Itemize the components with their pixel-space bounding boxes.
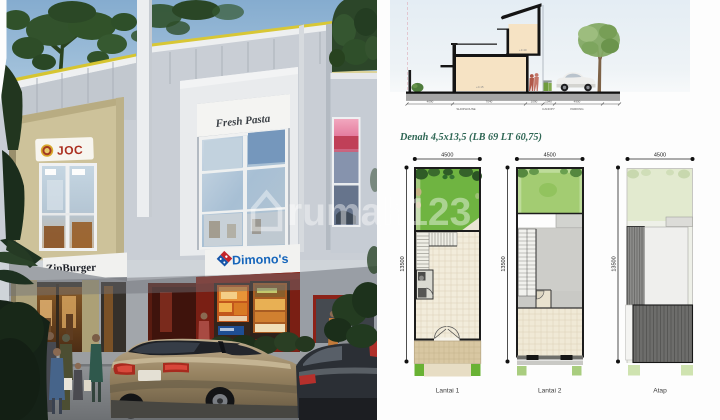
- svg-text:PARKING: PARKING: [570, 107, 584, 111]
- svg-text:4500: 4500: [441, 153, 453, 159]
- svg-text:4900: 4900: [574, 100, 581, 104]
- svg-text:Denah 4,5x13,5 (LB 69 LT 60,75: Denah 4,5x13,5 (LB 69 LT 60,75): [399, 132, 542, 143]
- svg-text:4500: 4500: [654, 153, 666, 159]
- svg-text:rumah123: rumah123: [287, 191, 471, 234]
- svg-text:13500: 13500: [501, 256, 507, 271]
- svg-text:Lantai 2: Lantai 2: [538, 388, 562, 395]
- svg-text:1040: 1040: [545, 100, 552, 104]
- svg-text:Atap: Atap: [653, 388, 667, 395]
- svg-text:JOC: JOC: [57, 143, 84, 158]
- svg-text:Dimono's: Dimono's: [232, 252, 289, 267]
- svg-text:CANOPY: CANOPY: [542, 107, 555, 111]
- svg-text:13500: 13500: [612, 256, 618, 271]
- svg-text:13500: 13500: [400, 256, 406, 271]
- svg-text:4090: 4090: [427, 100, 434, 104]
- svg-text:+3.40: +3.40: [519, 48, 527, 52]
- svg-text:Lantai 1: Lantai 1: [436, 388, 460, 395]
- svg-text:1090: 1090: [531, 100, 538, 104]
- svg-text:4500: 4500: [544, 153, 556, 159]
- svg-text:SHOPHOUSE: SHOPHOUSE: [456, 107, 475, 111]
- svg-text:+0.15: +0.15: [476, 85, 484, 89]
- svg-text:7040: 7040: [486, 100, 493, 104]
